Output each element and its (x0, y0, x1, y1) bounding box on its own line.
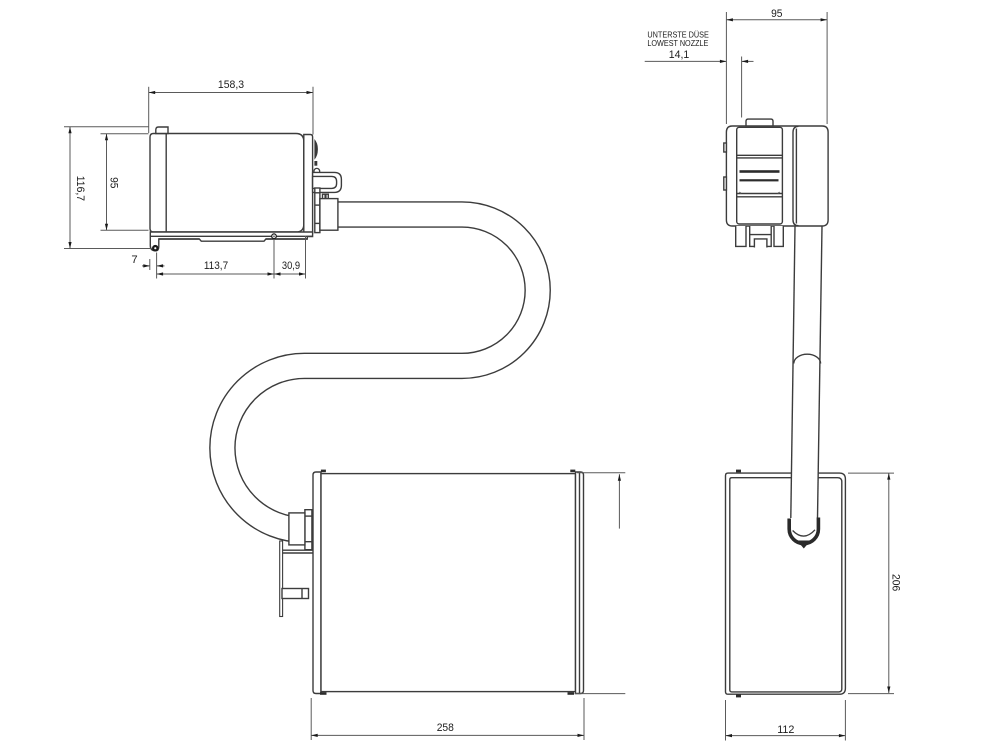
svg-text:112: 112 (777, 724, 794, 736)
svg-text:206: 206 (890, 574, 902, 591)
svg-text:LOWEST NOZZLE: LOWEST NOZZLE (647, 39, 708, 48)
svg-text:14,1: 14,1 (669, 49, 690, 61)
svg-text:7: 7 (131, 254, 137, 266)
svg-text:158,3: 158,3 (218, 79, 244, 91)
svg-text:95: 95 (771, 8, 782, 20)
svg-text:116,7: 116,7 (74, 176, 86, 201)
svg-text:95: 95 (108, 177, 120, 188)
svg-text:113,7: 113,7 (204, 260, 228, 272)
svg-text:30,9: 30,9 (282, 260, 300, 272)
svg-text:258: 258 (437, 722, 454, 734)
